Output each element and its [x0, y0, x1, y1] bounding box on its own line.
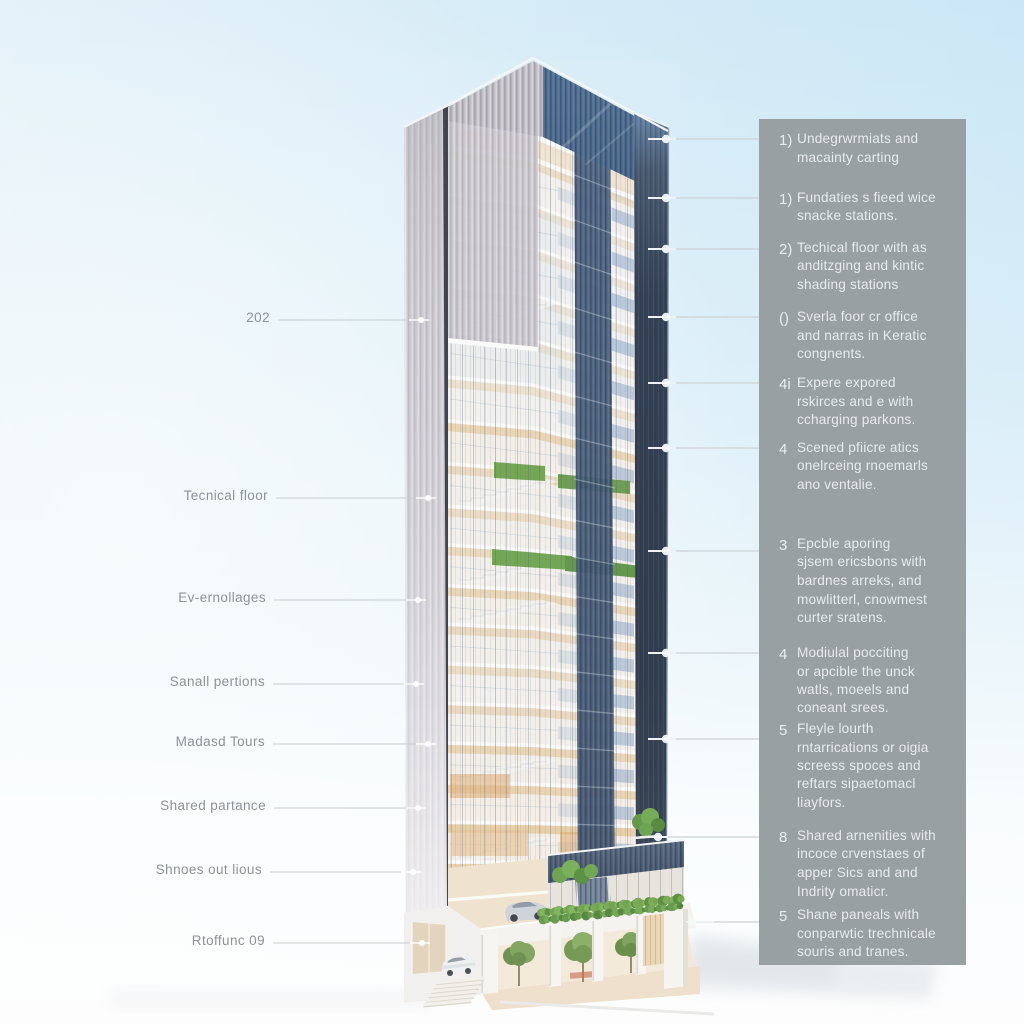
svg-text:Shnoes out lious: Shnoes out lious: [156, 862, 262, 877]
svg-text:souris and tranes.: souris and tranes.: [797, 944, 909, 959]
svg-text:Shared partance: Shared partance: [160, 798, 266, 813]
svg-text:shading stations: shading stations: [797, 277, 898, 292]
svg-text:4: 4: [779, 646, 787, 663]
svg-text:2): 2): [779, 241, 792, 258]
svg-text:5: 5: [779, 722, 787, 739]
svg-text:4: 4: [779, 441, 787, 458]
svg-text:anditzging and kintic: anditzging and kintic: [797, 258, 924, 273]
svg-text:Expere expored: Expere expored: [797, 375, 896, 390]
svg-text:screess spoces and: screess spoces and: [797, 758, 921, 773]
svg-text:Tecnical floor: Tecnical floor: [184, 488, 268, 503]
svg-text:or apcible the unck: or apcible the unck: [797, 664, 915, 679]
svg-text:macainty carting: macainty carting: [797, 150, 899, 165]
svg-text:conparwtic trechnicale: conparwtic trechnicale: [797, 926, 936, 941]
svg-text:Epcble aporing: Epcble aporing: [797, 536, 891, 551]
svg-text:mowlitterl, cnowmest: mowlitterl, cnowmest: [797, 592, 927, 607]
svg-text:Modiulal pocciting: Modiulal pocciting: [797, 645, 909, 660]
svg-text:202: 202: [246, 310, 270, 325]
svg-text:Ev-ernollages: Ev-ernollages: [178, 590, 266, 605]
svg-text:Undegrwrmiats and: Undegrwrmiats and: [797, 131, 918, 146]
svg-text:watls, moeels and: watls, moeels and: [796, 682, 909, 697]
svg-text:Fleyle lourth: Fleyle lourth: [797, 721, 874, 736]
svg-text:Shane paneals with: Shane paneals with: [797, 907, 919, 922]
svg-text:ano ventalie.: ano ventalie.: [797, 477, 877, 492]
svg-text:Fundaties s fieed wice: Fundaties s fieed wice: [797, 190, 936, 205]
svg-text:snacke stations.: snacke stations.: [797, 208, 898, 223]
svg-text:reftars sipaetomacl: reftars sipaetomacl: [797, 776, 916, 791]
svg-text:(): (): [779, 310, 789, 327]
svg-text:1): 1): [779, 132, 792, 149]
svg-text:coneant srees.: coneant srees.: [797, 700, 889, 715]
svg-text:and narras in Keratic: and narras in Keratic: [797, 328, 927, 343]
svg-text:liayfors.: liayfors.: [797, 795, 846, 810]
svg-text:8: 8: [779, 829, 787, 846]
svg-text:congnents.: congnents.: [797, 346, 866, 361]
svg-text:5: 5: [779, 908, 787, 925]
svg-text:Sverla foor cr office: Sverla foor cr office: [797, 309, 918, 324]
svg-text:curter sratens.: curter sratens.: [797, 610, 887, 625]
svg-text:Scened pfiicre atics: Scened pfiicre atics: [797, 440, 919, 455]
svg-text:rskirces and e with: rskirces and e with: [797, 394, 913, 409]
svg-text:ccharging parkons.: ccharging parkons.: [797, 412, 915, 427]
svg-text:4i: 4i: [779, 376, 791, 393]
svg-text:onelrceing rnoemarls: onelrceing rnoemarls: [797, 458, 928, 473]
svg-text:incoce crvenstaes of: incoce crvenstaes of: [797, 846, 925, 861]
svg-text:bardnes arreks, and: bardnes arreks, and: [797, 573, 922, 588]
svg-text:1): 1): [779, 191, 792, 208]
svg-text:Madasd Tours: Madasd Tours: [176, 734, 265, 749]
svg-text:Rtoffunc 09: Rtoffunc 09: [192, 933, 265, 948]
svg-text:Indrity omaticr.: Indrity omaticr.: [797, 884, 889, 899]
svg-text:Techical floor with as: Techical floor with as: [797, 240, 927, 255]
svg-text:3: 3: [779, 537, 787, 554]
svg-text:Shared arnenities with: Shared arnenities with: [797, 828, 936, 843]
svg-text:Sanall pertions: Sanall pertions: [170, 674, 265, 689]
svg-text:sjsem ericsbons with: sjsem ericsbons with: [797, 554, 926, 569]
svg-text:rntarrications or oigia: rntarrications or oigia: [797, 740, 929, 755]
svg-text:apper Sics and and: apper Sics and and: [797, 865, 918, 880]
